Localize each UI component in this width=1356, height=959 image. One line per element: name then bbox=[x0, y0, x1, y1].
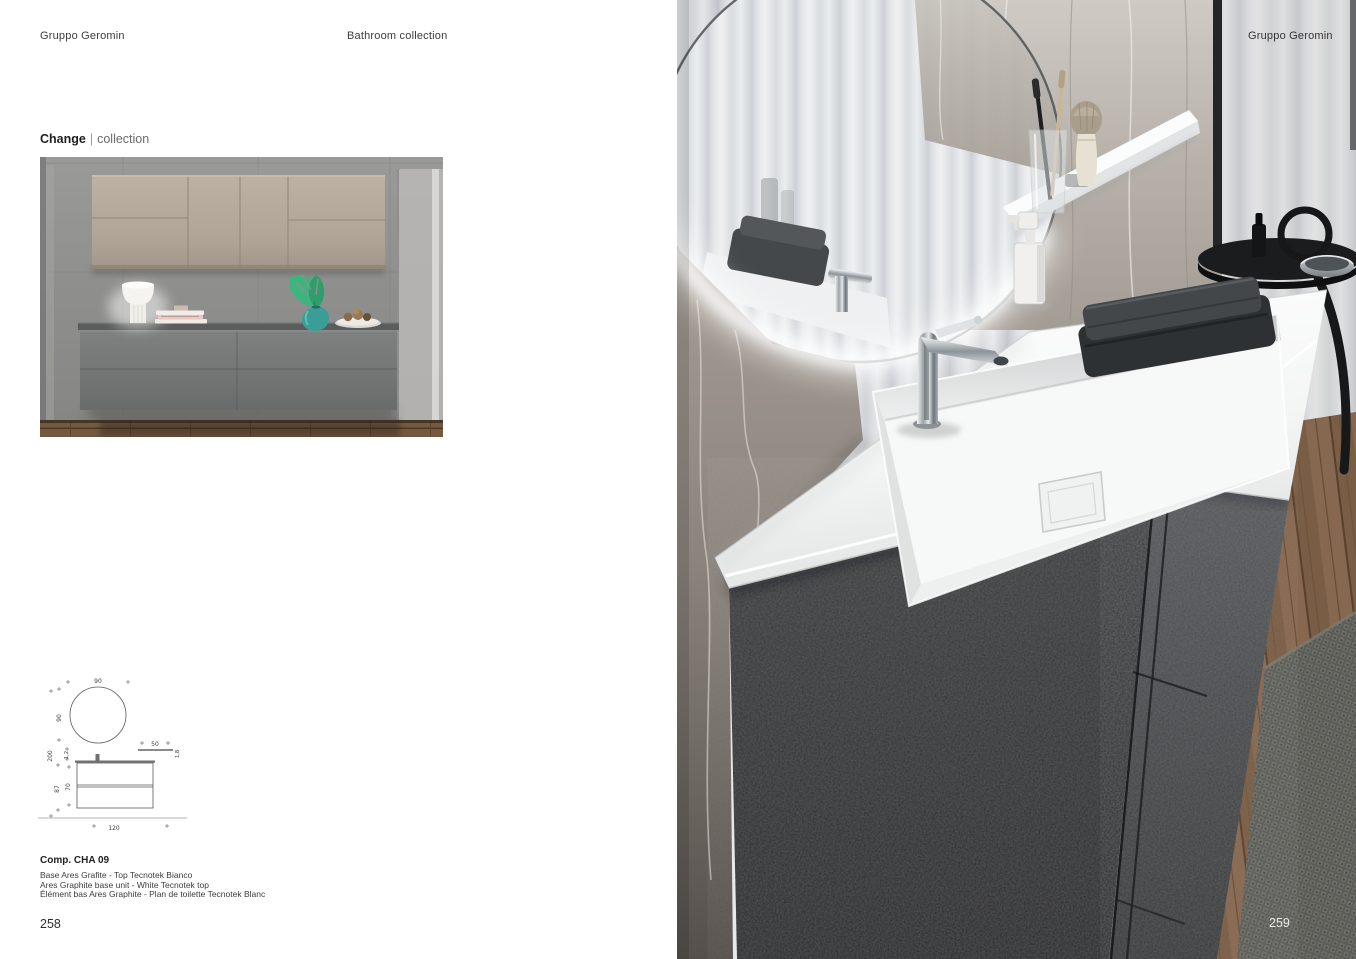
dim-mirror-width: 90 bbox=[94, 678, 102, 685]
title-separator: | bbox=[86, 132, 97, 146]
collection-suffix: collection bbox=[97, 132, 149, 146]
dim-base-width: 120 bbox=[108, 825, 120, 832]
dim-shelf-thickness: 1,8 bbox=[175, 750, 181, 758]
dim-shelf-width: 50 bbox=[151, 741, 159, 748]
diagram-mirror bbox=[70, 687, 126, 743]
metal-bowl bbox=[1300, 255, 1354, 277]
brand-header-left: Gruppo Geromin bbox=[40, 30, 125, 42]
diagram-base-unit bbox=[77, 763, 153, 808]
technical-drawing: 90 90 200 1,2 50 1,8 87 70 120 bbox=[35, 668, 205, 840]
composition-descriptions: Base Ares Grafite - Top Tecnotek Bianco … bbox=[40, 871, 265, 900]
wall-cabinet bbox=[92, 175, 385, 275]
composition-code: Comp. CHA 09 bbox=[40, 855, 109, 866]
dim-top-thickness: 1,2 bbox=[64, 751, 70, 759]
dim-unit-height: 87 bbox=[54, 785, 61, 793]
base-unit bbox=[78, 322, 399, 410]
catalog-spread: Gruppo Geromin Bathroom collection Chang… bbox=[0, 0, 1356, 959]
page-gutter-shadow bbox=[677, 0, 689, 959]
page-number-left: 258 bbox=[40, 917, 61, 931]
description-fr: Élément bas Ares Graphite - Plan de toil… bbox=[40, 890, 265, 900]
dim-total-height: 200 bbox=[47, 750, 54, 762]
page-title: Change|collection bbox=[40, 132, 149, 146]
glass-tumbler bbox=[1029, 130, 1067, 213]
wood-floor bbox=[40, 420, 443, 437]
page-left: Gruppo Geromin Bathroom collection Chang… bbox=[0, 0, 677, 959]
detail-photo bbox=[677, 0, 1356, 959]
dim-mirror-height: 90 bbox=[56, 714, 63, 722]
brand-header-right: Gruppo Geromin bbox=[1248, 30, 1333, 42]
page-number-right: 259 bbox=[1269, 916, 1290, 930]
dim-drawer-height: 70 bbox=[65, 783, 72, 791]
collection-header: Bathroom collection bbox=[347, 30, 447, 42]
collection-name: Change bbox=[40, 132, 86, 146]
product-photo bbox=[40, 157, 443, 437]
diagram-faucet bbox=[96, 754, 100, 761]
page-right: Gruppo Geromin 259 bbox=[677, 0, 1356, 959]
window-frame bbox=[1213, 0, 1222, 252]
